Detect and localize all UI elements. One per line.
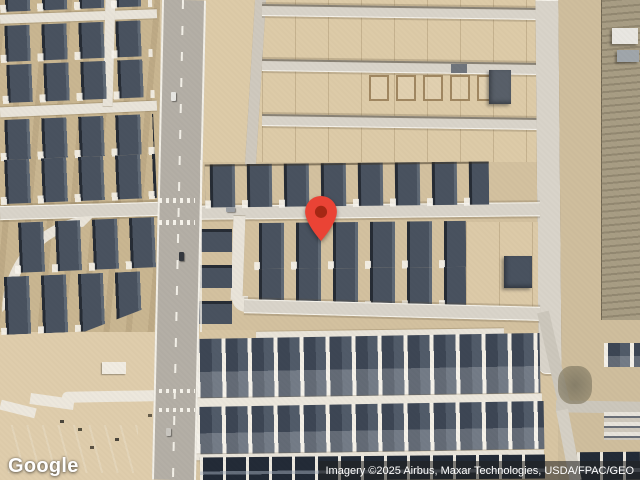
car (171, 92, 176, 101)
car (179, 252, 184, 261)
parking-court (604, 412, 640, 440)
dirt-road (62, 390, 158, 403)
construction-building (451, 64, 467, 73)
imagery-attribution-text: Imagery ©2025 Airbus, Maxar Technologies… (326, 465, 635, 477)
car (166, 428, 171, 436)
satellite-map[interactable]: Google Imagery ©2025 Airbus, Maxar Techn… (0, 0, 640, 480)
location-pin-marker[interactable] (305, 196, 337, 241)
attribution-bar: Imagery ©2025 Airbus, Maxar Technologies… (319, 461, 640, 480)
dense-housing-row (196, 333, 541, 399)
foundation-slab (423, 75, 443, 101)
crosswalk (159, 220, 195, 225)
dirt-mound (558, 366, 592, 404)
building (612, 28, 638, 44)
housing-row (13, 217, 157, 273)
housing-row (1, 59, 154, 103)
dense-housing-row (196, 401, 545, 455)
housing-row (205, 162, 489, 208)
concrete-slab (102, 362, 126, 374)
pin-icon (305, 196, 337, 241)
sidewalk-line (200, 160, 202, 332)
housing-row (0, 154, 157, 204)
dense-housing-row (604, 343, 640, 367)
housing-row (0, 114, 155, 160)
house (504, 256, 532, 288)
crosswalk (159, 389, 195, 393)
car (226, 207, 235, 212)
housing-row (254, 221, 466, 269)
housing-row (0, 20, 153, 62)
crosswalk (159, 408, 195, 412)
crosswalk (159, 198, 195, 203)
foundation-slab (396, 75, 416, 101)
building (617, 50, 639, 62)
foundation-slab (369, 75, 389, 101)
foundation-slab (450, 75, 470, 101)
google-logo[interactable]: Google (8, 455, 79, 478)
construction-debris (60, 420, 64, 423)
construction-building (489, 70, 511, 104)
desert-scrub-strip (601, 0, 640, 320)
